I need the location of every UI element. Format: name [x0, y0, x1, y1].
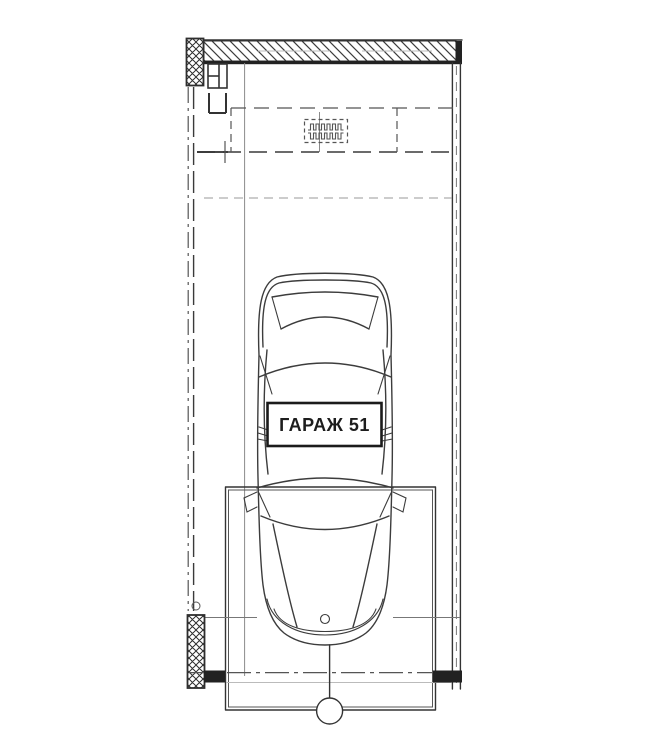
- car-trunk-line: [263, 280, 388, 347]
- gate-centerline-group: [189, 671, 462, 683]
- apron-outer-rect: [226, 487, 436, 710]
- garage-floor-plan: ГАРАЖ 51: [0, 0, 650, 750]
- car-emblem: [321, 615, 330, 624]
- car-windshield: [257, 478, 393, 530]
- utility-fixture: [208, 64, 227, 113]
- garage-label: ГАРАЖ 51: [268, 403, 382, 446]
- radiator-symbol: [305, 120, 348, 143]
- gate-stub-left: [204, 671, 225, 683]
- car-body-outline: [258, 273, 393, 645]
- axis-marker: [317, 645, 343, 724]
- car-side-mirrors: [244, 492, 406, 512]
- scanned-plan-sheet: ГАРАЖ 51: [0, 0, 650, 750]
- garage-label-text: ГАРАЖ 51: [279, 415, 370, 435]
- corner-column: [187, 39, 204, 86]
- top-wall-inner-edge: [204, 61, 462, 64]
- car-mirror-left: [244, 492, 257, 512]
- top-wall-end-cap: [456, 41, 463, 62]
- right-wall: [452, 63, 460, 689]
- car-top-view: [244, 273, 406, 645]
- car-hood: [267, 524, 383, 635]
- pier-column: [188, 615, 205, 688]
- fixture-u-bracket: [209, 93, 226, 113]
- top-wall: [204, 40, 462, 64]
- car-mirror-right: [393, 492, 406, 512]
- left-wall: [188, 87, 200, 611]
- gate-apron: [204, 487, 460, 710]
- car-rear-window: [272, 292, 378, 329]
- gate-stub-right: [433, 671, 462, 683]
- overhead-structure: [197, 108, 454, 163]
- axis-bubble: [317, 698, 343, 724]
